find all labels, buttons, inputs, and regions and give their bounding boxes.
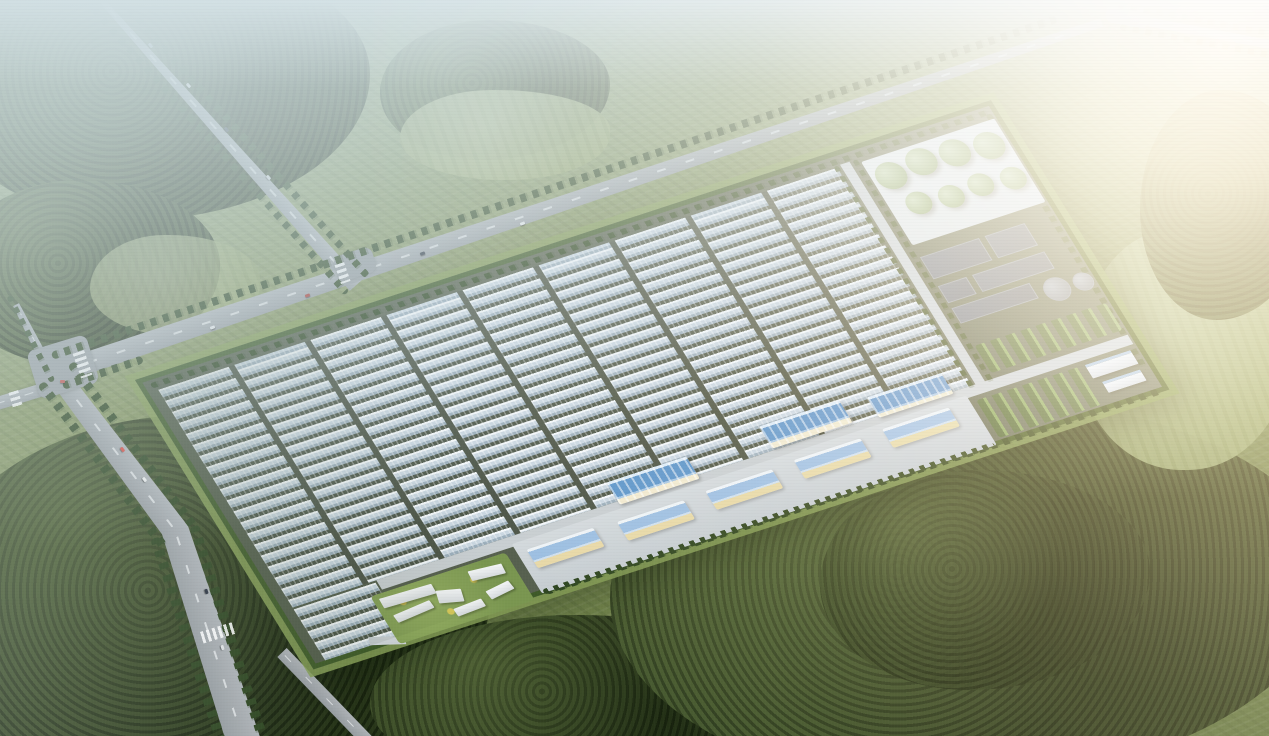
storage-tank	[933, 135, 977, 170]
admin-building	[467, 563, 506, 581]
sediment-pad	[985, 223, 1039, 258]
storage-tank	[900, 188, 937, 217]
meadow-top-center	[400, 90, 610, 180]
aerial-rendering-scene	[0, 0, 1269, 736]
storage-tank	[933, 182, 970, 211]
storage-tank	[995, 164, 1032, 193]
clarifier-tank	[1069, 270, 1099, 293]
sediment-pad	[938, 277, 977, 303]
admin-building	[435, 589, 464, 604]
admin-building	[485, 580, 514, 599]
storage-tank	[967, 128, 1011, 163]
clarifier-tank	[1038, 274, 1076, 304]
storage-tank	[962, 170, 999, 199]
vehicle	[60, 380, 65, 383]
